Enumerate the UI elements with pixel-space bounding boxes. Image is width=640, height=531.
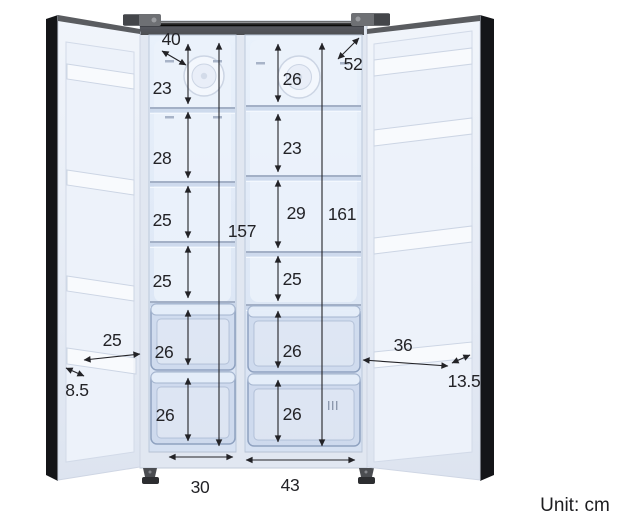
right-drawer-1 [248, 306, 360, 372]
fridge-dimension-diagram: III [0, 0, 640, 531]
dim-left-section-4-label: 25 [153, 271, 172, 291]
left-door-edge [46, 15, 58, 481]
dim-right-section-2-label: 23 [283, 138, 302, 158]
dim-left-door-shelf-width-label: 25 [103, 330, 122, 350]
dim-top-right-depth-label: 52 [344, 54, 363, 74]
dim-top-left-depth-label: 40 [162, 29, 181, 49]
dim-left-drawer-2-label: 26 [156, 405, 175, 425]
right-compartment: III [245, 35, 362, 452]
dim-left-drawer-1-label: 26 [155, 342, 174, 362]
dim-left-door-shelf-depth-label: 8.5 [65, 380, 88, 400]
dim-left-section-3-label: 25 [153, 210, 172, 230]
right-foot [358, 468, 375, 484]
dim-right-section-4-label: 25 [283, 269, 302, 289]
drawer-mark-label: III [327, 399, 339, 413]
left-door [46, 15, 140, 481]
right-door [367, 15, 494, 481]
dim-right-total-height-label: 161 [328, 204, 356, 224]
dim-right-door-shelf-depth-label: 13.5 [448, 371, 481, 391]
dim-right-section-1-label: 26 [283, 69, 302, 89]
unit-label: Unit: cm [540, 495, 610, 516]
left-foot [142, 468, 159, 484]
dim-left-bottom-width-label: 30 [191, 477, 210, 497]
right-top-hinge [351, 13, 390, 26]
dim-right-door-shelf-width-label: 36 [394, 335, 413, 355]
dim-left-section-1-label: 23 [153, 78, 172, 98]
dim-right-drawer-2-label: 26 [283, 404, 302, 424]
dim-right-bottom-width-label: 43 [281, 475, 300, 495]
dim-right-drawer-1-label: 26 [283, 341, 302, 361]
diagram-canvas: III [0, 0, 640, 531]
right-door-edge [480, 15, 494, 481]
dim-left-total-height-label: 157 [228, 221, 256, 241]
left-top-hinge [123, 14, 161, 26]
right-drawer-2: III [248, 374, 360, 446]
dim-left-section-2-label: 28 [153, 148, 172, 168]
dim-right-section-3-label: 29 [287, 203, 306, 223]
